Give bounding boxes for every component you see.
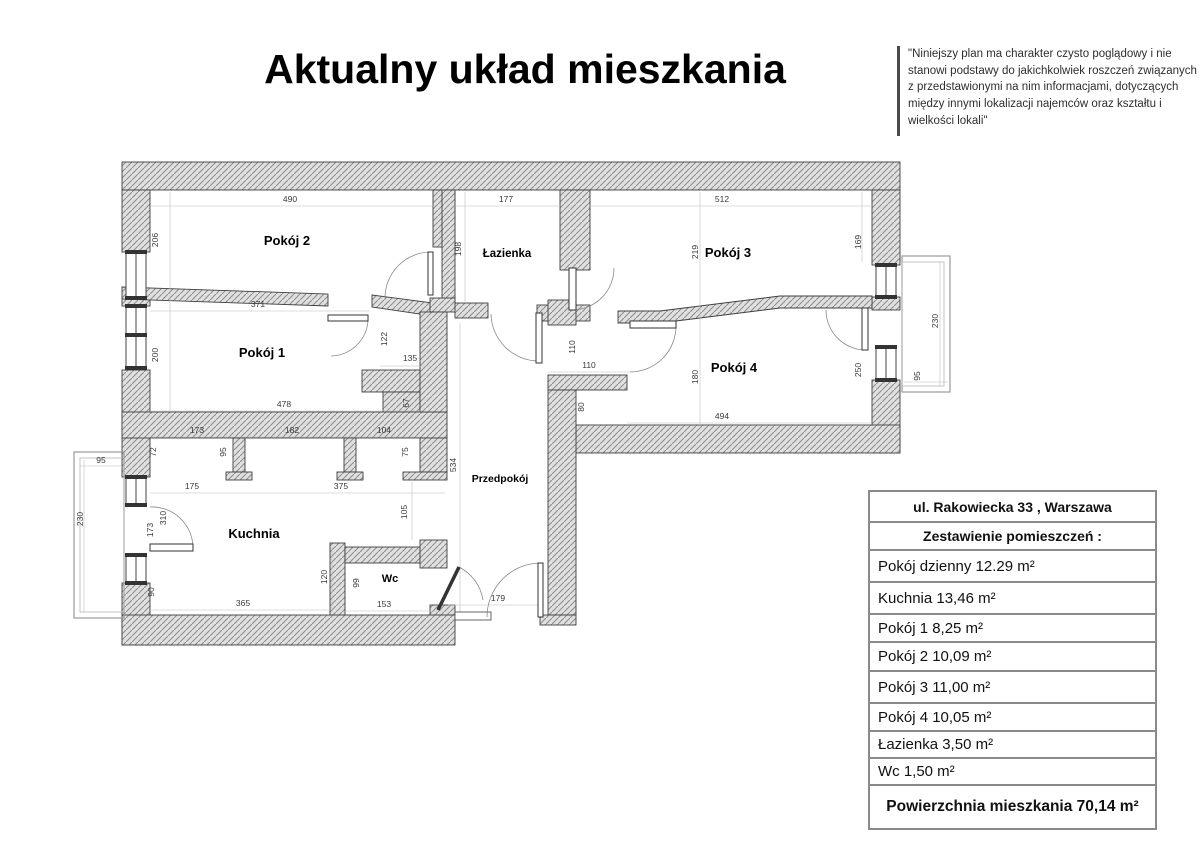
table-total: Powierzchnia mieszkania 70,14 m² — [870, 784, 1155, 828]
dim-label: 200 — [150, 348, 160, 362]
dim-label: 219 — [690, 245, 700, 259]
dim-label: 80 — [576, 402, 586, 412]
wall-bathroom-bottom — [455, 303, 488, 318]
balcony-right — [902, 256, 950, 392]
dim-label: 177 — [499, 194, 513, 204]
dim-label: 72 — [148, 447, 158, 457]
dim-label: 250 — [853, 363, 863, 377]
dim-label: 365 — [236, 598, 250, 608]
wall-bottom-right-section — [576, 425, 900, 453]
wall-hall-left — [420, 312, 447, 412]
wall-kitchen-stub — [233, 438, 245, 472]
dim-label: 310 — [158, 511, 168, 525]
dim-label: 173 — [145, 523, 155, 537]
dim-label: 95 — [912, 371, 922, 381]
table-row: Wc 1,50 m² — [870, 757, 1155, 784]
wall-kitchen-stub-foot — [226, 472, 252, 480]
wall-right — [872, 190, 900, 265]
wall-hall-left — [420, 438, 447, 472]
balcony-left-inner — [80, 458, 124, 612]
dim-label: 110 — [582, 360, 596, 370]
dim-label: 175 — [185, 481, 199, 491]
room-label: Wc — [382, 573, 399, 585]
dim-label: 90 — [146, 587, 156, 597]
dim-label: 67 — [401, 398, 411, 408]
dim-label: 478 — [277, 399, 291, 409]
room-label: Pokój 3 — [705, 245, 751, 260]
walls — [122, 162, 900, 645]
dim-label: 206 — [150, 233, 160, 247]
dim-label: 375 — [334, 481, 348, 491]
page: Aktualny układ mieszkania "Niniejszy pla… — [0, 0, 1200, 849]
wall-hall-right — [548, 375, 627, 390]
room-label: Przedpokój — [472, 473, 529, 485]
balcony-left — [74, 452, 124, 618]
dim-label: 104 — [377, 425, 391, 435]
wall-bottom — [122, 615, 455, 645]
wall-hall-right-foot — [540, 615, 576, 625]
dim-label: 99 — [351, 578, 361, 588]
table-subtitle: Zestawienie pomieszczeń : — [870, 521, 1155, 549]
dim-label: 122 — [379, 332, 389, 346]
entrance-threshold — [455, 612, 491, 620]
dim-label: 110 — [567, 340, 577, 354]
wall-bathroom-foot — [430, 298, 455, 312]
dim-label: 95 — [96, 455, 106, 465]
dim-label: 230 — [75, 512, 85, 526]
table-row: Pokój 3 11,00 m² — [870, 670, 1155, 702]
table-row: Kuchnia 13,46 m² — [870, 581, 1155, 613]
room-label: Pokój 2 — [264, 233, 310, 248]
room-label: Pokój 1 — [239, 345, 285, 360]
dim-label: 490 — [283, 194, 297, 204]
wall-top — [122, 162, 900, 190]
wall-hall-left-foot — [403, 472, 447, 480]
wall-kitchen-stub-foot — [337, 472, 363, 480]
dim-label: 180 — [690, 370, 700, 384]
dim-label: 95 — [218, 447, 228, 457]
dim-label: 534 — [448, 458, 458, 472]
dim-label: 120 — [319, 570, 329, 584]
room-summary-table: ul. Rakowiecka 33 , Warszawa Zestawienie… — [868, 490, 1157, 830]
table-row: Pokój dzienny 12.29 m² — [870, 549, 1155, 581]
wall-divider-p1-p2 — [122, 287, 328, 306]
dim-label: 75 — [400, 447, 410, 457]
room-label: Pokój 4 — [711, 360, 758, 375]
dim-label: 371 — [251, 299, 265, 309]
wall-wc-block — [420, 540, 447, 568]
table-row: Pokój 2 10,09 m² — [870, 641, 1155, 670]
wall-bathroom-right — [560, 190, 590, 270]
dim-label: 135 — [403, 353, 417, 363]
wall-kitchen-stub — [344, 438, 356, 472]
room-label: Kuchnia — [228, 526, 280, 541]
dim-label: 153 — [377, 599, 391, 609]
table-row: Pokój 4 10,05 m² — [870, 702, 1155, 730]
wall-wc-top — [345, 547, 420, 563]
dim-label: 230 — [930, 314, 940, 328]
dim-label: 169 — [853, 235, 863, 249]
dim-label: 105 — [399, 505, 409, 519]
table-row: Pokój 1 8,25 m² — [870, 613, 1155, 641]
wall-divider-p3-p4 — [618, 296, 872, 323]
dim-label: 182 — [285, 425, 299, 435]
dim-label: 512 — [715, 194, 729, 204]
wall-left — [122, 190, 150, 252]
dim-label: 198 — [453, 242, 463, 256]
dim-label: 173 — [190, 425, 204, 435]
table-row: Łazienka 3,50 m² — [870, 730, 1155, 757]
dim-label: 494 — [715, 411, 729, 421]
wall-hall-right — [548, 390, 576, 615]
dim-label: 179 — [491, 593, 505, 603]
table-address: ul. Rakowiecka 33 , Warszawa — [870, 492, 1155, 521]
room-label: Łazienka — [483, 248, 532, 260]
wall-p1-step — [362, 370, 420, 392]
